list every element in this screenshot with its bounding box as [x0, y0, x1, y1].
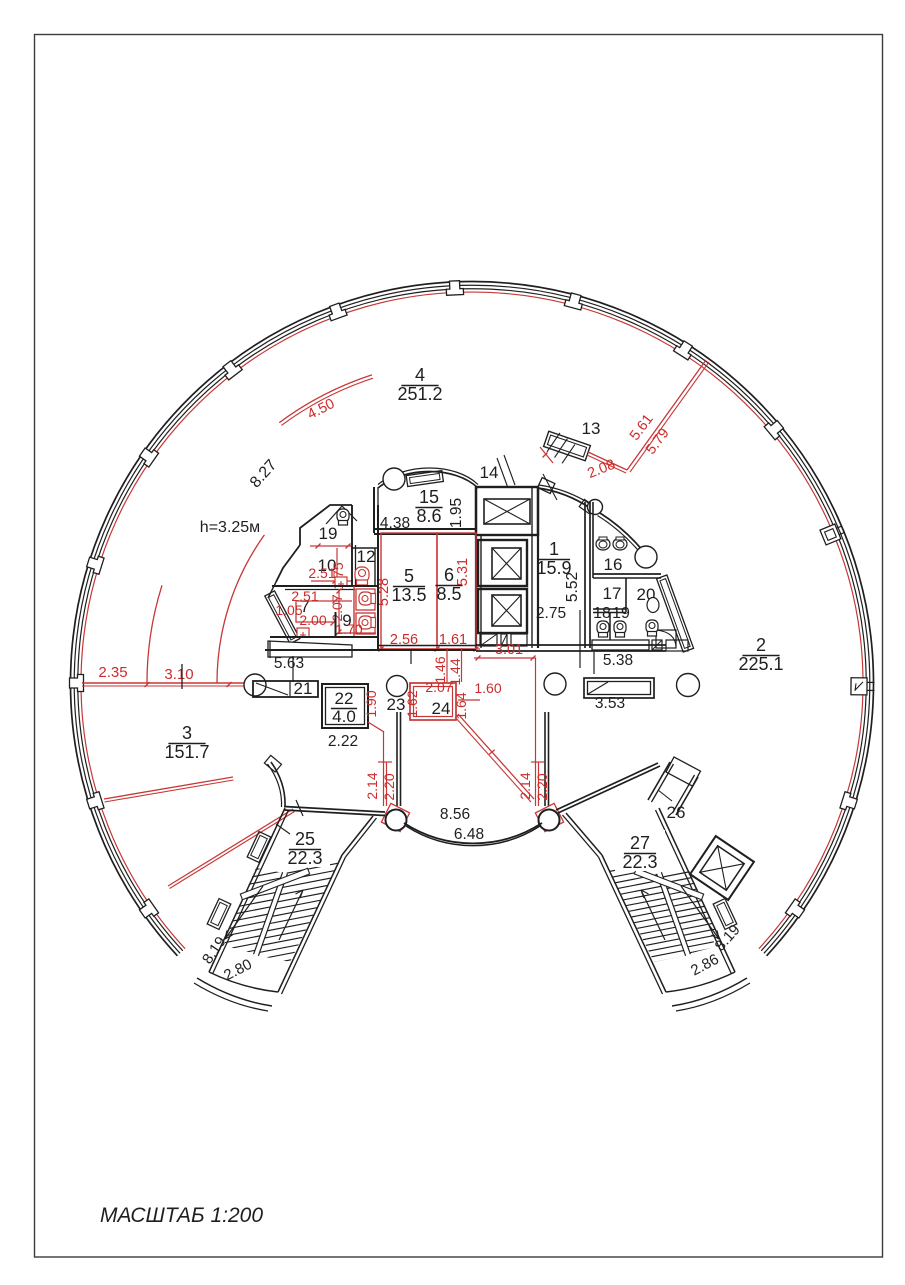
svg-text:2: 2 — [756, 635, 766, 655]
svg-text:2.75: 2.75 — [536, 605, 566, 622]
svg-text:17: 17 — [603, 584, 622, 603]
svg-text:3.01: 3.01 — [495, 642, 523, 658]
svg-text:2.14: 2.14 — [517, 772, 533, 799]
svg-text:16: 16 — [604, 555, 623, 574]
svg-text:8.27: 8.27 — [247, 457, 281, 492]
svg-text:21: 21 — [294, 679, 313, 698]
svg-text:3: 3 — [182, 723, 192, 743]
svg-text:1: 1 — [549, 539, 559, 559]
svg-text:151.7: 151.7 — [164, 742, 209, 762]
svg-text:251.2: 251.2 — [397, 384, 442, 404]
svg-text:2.80: 2.80 — [221, 956, 255, 984]
svg-text:18: 18 — [593, 605, 611, 622]
svg-text:2.20: 2.20 — [534, 773, 550, 800]
svg-text:2.86: 2.86 — [688, 951, 722, 980]
svg-text:1.60: 1.60 — [474, 680, 501, 696]
svg-text:225.1: 225.1 — [738, 654, 783, 674]
svg-text:6: 6 — [444, 565, 454, 585]
svg-text:5: 5 — [404, 566, 414, 586]
svg-text:24: 24 — [432, 699, 451, 718]
svg-text:19: 19 — [319, 524, 338, 543]
svg-text:1.90: 1.90 — [363, 690, 379, 717]
svg-text:2.07: 2.07 — [425, 679, 452, 695]
svg-text:8.19: 8.19 — [712, 921, 744, 954]
svg-text:22.3: 22.3 — [622, 852, 657, 872]
svg-text:19: 19 — [612, 605, 630, 622]
svg-text:8.6: 8.6 — [416, 506, 441, 526]
svg-text:МАСШТАБ 1:200: МАСШТАБ 1:200 — [100, 1204, 263, 1227]
svg-text:3.10: 3.10 — [164, 666, 193, 683]
svg-text:22: 22 — [335, 689, 354, 708]
svg-text:22.3: 22.3 — [287, 848, 322, 868]
svg-text:23: 23 — [387, 695, 406, 714]
svg-text:1.62: 1.62 — [404, 690, 420, 717]
svg-text:14: 14 — [480, 463, 499, 482]
svg-text:2.00: 2.00 — [299, 612, 326, 628]
svg-text:2.35: 2.35 — [98, 664, 127, 681]
svg-text:5.63: 5.63 — [274, 655, 304, 672]
svg-text:4.38: 4.38 — [380, 515, 410, 532]
svg-text:12: 12 — [357, 547, 376, 566]
svg-text:13.5: 13.5 — [391, 585, 426, 605]
svg-text:5.38: 5.38 — [603, 652, 633, 669]
svg-text:13: 13 — [582, 419, 601, 438]
svg-text:2.22: 2.22 — [328, 733, 358, 750]
svg-text:27: 27 — [630, 833, 650, 853]
svg-text:15: 15 — [419, 487, 439, 507]
svg-text:4.50: 4.50 — [305, 396, 337, 423]
svg-text:5.52: 5.52 — [564, 572, 581, 602]
svg-text:4.0: 4.0 — [332, 707, 356, 726]
svg-text:5.31: 5.31 — [455, 558, 471, 586]
svg-text:1.95: 1.95 — [448, 498, 465, 528]
svg-text:3.53: 3.53 — [595, 695, 625, 712]
svg-text:6.48: 6.48 — [454, 826, 484, 843]
svg-text:2.08: 2.08 — [585, 457, 617, 482]
svg-text:2.20: 2.20 — [381, 773, 397, 800]
svg-text:25: 25 — [295, 829, 315, 849]
svg-text:8.56: 8.56 — [440, 806, 470, 823]
svg-text:1.70: 1.70 — [335, 621, 362, 637]
svg-text:4: 4 — [415, 365, 425, 385]
svg-text:1.64: 1.64 — [453, 692, 469, 719]
svg-text:2.51: 2.51 — [308, 565, 335, 581]
svg-text:h=3.25м: h=3.25м — [200, 519, 260, 536]
svg-text:26: 26 — [667, 803, 686, 822]
svg-text:2.14: 2.14 — [364, 772, 380, 799]
